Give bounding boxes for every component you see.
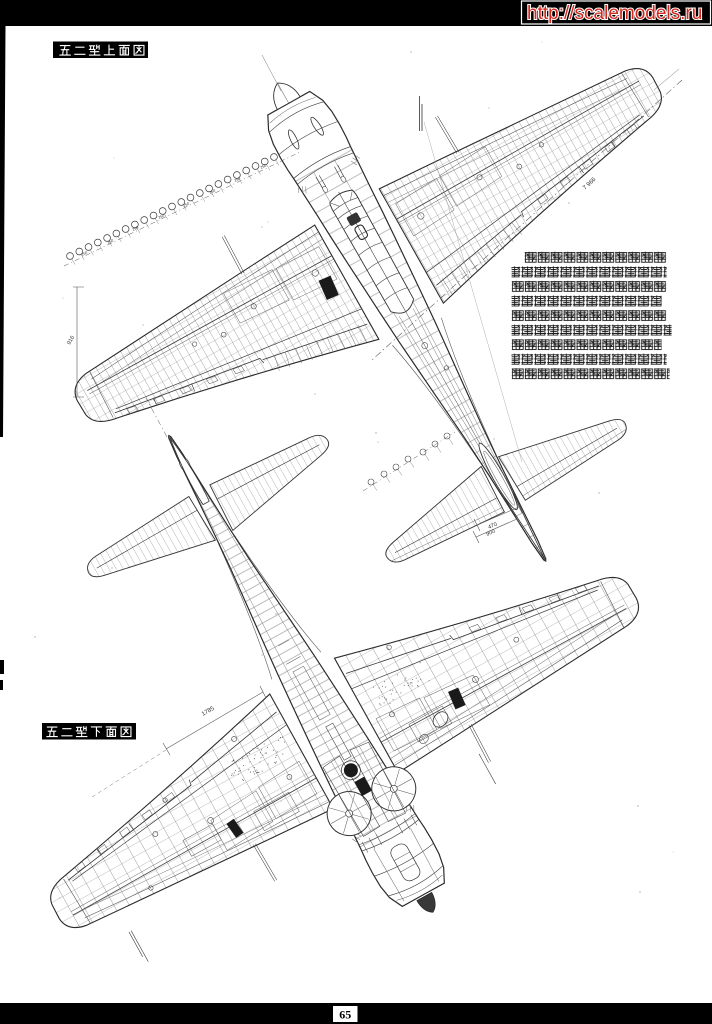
svg-text:65: 65 [339, 1007, 351, 1021]
svg-text:http://scalemodels.ru: http://scalemodels.ru [527, 3, 702, 24]
